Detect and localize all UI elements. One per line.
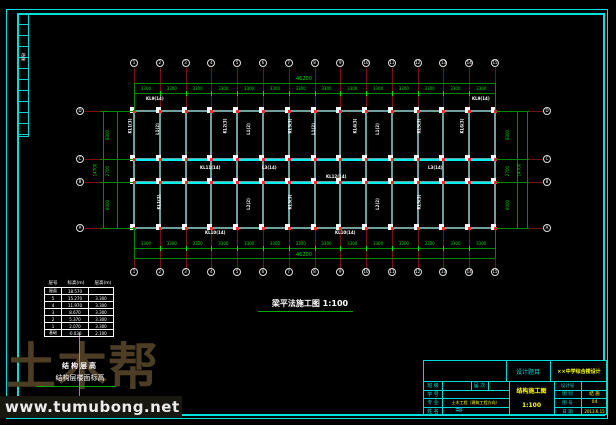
table-row: 12.0703.300 (45, 323, 114, 330)
bay-dim-text: 3300 (399, 87, 409, 91)
dim-tick (289, 246, 290, 251)
axis-bubble-left: A (76, 224, 84, 232)
grid-node (262, 110, 265, 113)
grid-node (288, 181, 291, 184)
plan-title: 梁平法施工图 1:100 (250, 298, 370, 309)
table-cell: 3.300 (89, 302, 114, 309)
table-row: 38.6703.300 (45, 309, 114, 316)
dim-tick (315, 246, 316, 251)
ext-line (100, 159, 134, 160)
axis-bubble-bottom: 9 (336, 268, 344, 276)
title-block: 设计题目 ××中学综合楼设计 班 级 届 次 学 号 专 业 土木工程（建筑工程… (423, 360, 607, 415)
overall-depth-dim-text: 14700 (517, 164, 521, 177)
table-row: 411.9703.300 (45, 302, 114, 309)
bay-dim-text: 3300 (425, 87, 435, 91)
table-cell: 8.670 (62, 309, 89, 316)
table-caption-line1: 结构层高 (40, 361, 120, 371)
bay-dim-text: 3300 (373, 87, 383, 91)
bay-dim-text: 3300 (244, 87, 254, 91)
beam-vertical (262, 111, 264, 229)
dim-tick (211, 91, 212, 96)
major-label: 专 业 (424, 398, 442, 407)
grid-node (159, 110, 162, 113)
axis-bubble-top: 4 (207, 59, 215, 67)
bay-dim-text: 3300 (321, 242, 331, 246)
dim-tick (160, 246, 161, 251)
dim-tick (418, 91, 419, 96)
overall-dim-line (103, 111, 104, 228)
grid-node (314, 158, 317, 161)
axis-bubble-top: 14 (465, 59, 473, 67)
beam-label: L3(14) (428, 166, 443, 170)
beam-label: KL10(14) (335, 231, 355, 235)
axis-bubble-top: 1 (130, 59, 138, 67)
grid-node (185, 110, 188, 113)
grid-node (288, 227, 291, 230)
span-dim-text: 6000 (106, 200, 110, 210)
grid-node (468, 158, 471, 161)
design-no-label: 设计号 (554, 381, 581, 390)
grid-node (339, 158, 342, 161)
bay-dim-text: 3300 (167, 87, 177, 91)
grid-node (185, 227, 188, 230)
grid-node (236, 227, 239, 230)
axis-bubble-top: 11 (388, 59, 396, 67)
ext-line (495, 228, 496, 258)
axis-bubble-left: C (76, 155, 84, 163)
beam-label: KL12(14) (326, 175, 346, 179)
beam-label: KL10(14) (205, 231, 225, 235)
beam-vertical (442, 111, 444, 229)
axis-bubble-bottom: 7 (285, 268, 293, 276)
table-cell: 3 (45, 309, 62, 316)
grid-node (365, 158, 368, 161)
bay-dim-text: 3300 (399, 242, 409, 246)
axis-bubble-bottom: 2 (156, 268, 164, 276)
bay-dim-text: 3300 (373, 242, 383, 246)
axis-bubble-right: C (543, 155, 551, 163)
beam-label: KL3(3) (288, 195, 292, 210)
bay-dim-text: 3300 (218, 242, 228, 246)
beam-label: L1(2) (247, 123, 251, 135)
axis-bubble-right: B (543, 178, 551, 186)
axis-bubble-bottom: 3 (182, 268, 190, 276)
bay-dim-text: 3300 (476, 242, 486, 246)
bay-dim-text: 3300 (192, 87, 202, 91)
grid-node (391, 181, 394, 184)
grid-node (468, 181, 471, 184)
beam-label: KL9(14) (146, 97, 164, 101)
grid-node (442, 227, 445, 230)
grid-node (339, 181, 342, 184)
bay-dim-text: 3300 (167, 242, 177, 246)
table-cell: 2.070 (62, 323, 89, 330)
grid-node (236, 181, 239, 184)
sheet-scale-value: 1:100 (509, 399, 554, 411)
grid-node (442, 110, 445, 113)
beam-label: KL3(3) (288, 119, 292, 134)
project-title-value: ××中学综合楼设计 (550, 361, 608, 381)
beam-label: KL6(3) (460, 119, 464, 134)
dim-tick (186, 246, 187, 251)
axis-bubble-bottom: 8 (311, 268, 319, 276)
grid-node (391, 158, 394, 161)
beam-label: L2(2) (376, 198, 380, 210)
axis-bubble-bottom: 12 (414, 268, 422, 276)
dim-tick (366, 91, 367, 96)
dim-tick (340, 246, 341, 251)
grid-node (262, 181, 265, 184)
table-row: 25.3703.300 (45, 316, 114, 323)
span-dim-line (117, 111, 118, 228)
axis-bubble-top: 9 (336, 59, 344, 67)
table-cell: -0.030 (62, 330, 89, 337)
bay-dim-text: 3300 (218, 87, 228, 91)
grid-node (210, 181, 213, 184)
project-title-label: 设计题目 (506, 361, 550, 381)
axis-bubble-bottom: 11 (388, 268, 396, 276)
bay-dim-text: 3300 (244, 242, 254, 246)
axis-bubble-bottom: 1 (130, 268, 138, 276)
bay-dim-text: 3300 (321, 87, 331, 91)
grid-node (417, 227, 420, 230)
table-row: 515.2703.300 (45, 295, 114, 302)
axis-bubble-right: A (543, 224, 551, 232)
beam-label: L1(2) (376, 123, 380, 135)
beam-vertical (236, 111, 238, 229)
watermark-url-bar: www.tumubong.net (0, 396, 182, 418)
dim-tick (469, 91, 470, 96)
axis-bubble-top: 8 (311, 59, 319, 67)
axis-bubble-top: 3 (182, 59, 190, 67)
overall-dim-text: 46200 (296, 253, 312, 258)
axis-bubble-top: 2 (156, 59, 164, 67)
beam-label: KL1(3) (128, 119, 132, 134)
grid-node (262, 227, 265, 230)
table-cell: 11.970 (62, 302, 89, 309)
dim-tick (263, 246, 264, 251)
grid-node (159, 227, 162, 230)
table-cell: 5.370 (62, 316, 89, 323)
span-dim-text: 2700 (506, 165, 510, 175)
table-cell: 2 (45, 316, 62, 323)
cad-drawing-canvas[interactable]: 结施 土木帮 www.tumubong.net 1122334455667788… (0, 0, 616, 425)
grid-node (288, 110, 291, 113)
axis-bubble-right: D (543, 107, 551, 115)
ext-line (100, 182, 134, 183)
table-cell (89, 288, 114, 295)
floor-table-header-cell: 标高(m) (62, 280, 90, 286)
beam-label: L3(14) (262, 166, 277, 170)
table-cell: 基础 (45, 330, 62, 337)
beam-vertical (494, 111, 496, 229)
beam-label: KL5(3) (417, 119, 421, 134)
dim-tick (237, 246, 238, 251)
axis-bubble-top: 10 (362, 59, 370, 67)
table-row: 基础-0.0302.100 (45, 330, 114, 337)
table-cell: 18.570 (62, 288, 89, 295)
bay-dim-text: 3300 (296, 87, 306, 91)
grid-node (468, 227, 471, 230)
dim-tick (211, 246, 212, 251)
bay-dim-text: 3300 (476, 87, 486, 91)
bay-dim-text: 3300 (270, 242, 280, 246)
beam-label: KL4(3) (353, 119, 357, 134)
dim-tick (418, 246, 419, 251)
grid-node (365, 227, 368, 230)
bay-dim-text: 3300 (141, 242, 151, 246)
ext-line (495, 182, 529, 183)
span-dim-text: 6000 (506, 200, 510, 210)
beam-label: KL1(3) (157, 195, 161, 210)
axis-bubble-bottom: 13 (439, 268, 447, 276)
axis-bubble-bottom: 6 (259, 268, 267, 276)
beam-vertical (339, 111, 341, 229)
overall-dim-line (527, 111, 528, 228)
grid-node (365, 110, 368, 113)
axis-bubble-left: D (76, 107, 84, 115)
sheet-no-value: 04 (581, 398, 608, 407)
sheet-type-label: 图 别 (554, 390, 581, 398)
table-cell: 3.300 (89, 295, 114, 302)
class-label: 班 级 (424, 381, 442, 390)
dim-tick (315, 91, 316, 96)
bay-dim-text: 3300 (141, 87, 151, 91)
beam-label: KL2(3) (223, 119, 227, 134)
sheet-title-value: 结构施工图 (509, 384, 554, 396)
axis-bubble-bottom: 5 (233, 268, 241, 276)
dim-tick (289, 91, 290, 96)
table-cell: 1 (45, 323, 62, 330)
overall-dim-line (134, 83, 495, 84)
plan-title-underline (258, 311, 353, 312)
grid-node (210, 158, 213, 161)
ext-line (495, 83, 496, 111)
ext-line (495, 228, 529, 229)
student-no-label: 学 号 (424, 390, 442, 398)
span-dim-text: 2700 (106, 165, 110, 175)
axis-bubble-top: 15 (491, 59, 499, 67)
grid-node (339, 110, 342, 113)
axis-bubble-bottom: 10 (362, 268, 370, 276)
axis-bubble-bottom: 15 (491, 268, 499, 276)
bay-dim-text: 3300 (270, 87, 280, 91)
axis-bubble-top: 6 (259, 59, 267, 67)
overall-dim-line (134, 258, 495, 259)
dim-tick (392, 91, 393, 96)
grid-node (468, 110, 471, 113)
overall-dim-text: 46200 (296, 77, 312, 82)
table-cell: 3.300 (89, 309, 114, 316)
overall-depth-dim-text: 14700 (93, 164, 97, 177)
grid-node (185, 158, 188, 161)
table-cell: 3.300 (89, 316, 114, 323)
table-cell: 4 (45, 302, 62, 309)
grid-node (417, 110, 420, 113)
beam-vertical (468, 111, 470, 229)
sheet-no-label: 图 号 (554, 398, 581, 407)
beam-label: L1(2) (312, 123, 316, 135)
axis-bubble-left: B (76, 178, 84, 186)
table-row: 屋面18.570 (45, 288, 114, 295)
beam-label: KL5(3) (417, 195, 421, 210)
grid-node (442, 181, 445, 184)
axis-bubble-bottom: 4 (207, 268, 215, 276)
grid-node (185, 181, 188, 184)
grid-node (365, 181, 368, 184)
floor-table-header: 层号标高(m)层高(m) (44, 280, 116, 286)
beam-label: L2(2) (247, 198, 251, 210)
bay-dim-text: 3300 (450, 242, 460, 246)
grid-node (391, 110, 394, 113)
axis-bubble-top: 13 (439, 59, 447, 67)
axis-bubble-top: 7 (285, 59, 293, 67)
beam-vertical (210, 111, 212, 229)
dim-tick (443, 246, 444, 251)
grid-node (442, 158, 445, 161)
bay-dim-text: 3300 (347, 242, 357, 246)
grid-node (314, 181, 317, 184)
ext-line (134, 83, 135, 111)
table-caption-line2: 结构层楼面标高 (36, 373, 124, 383)
ext-line (100, 228, 134, 229)
grid-node (159, 158, 162, 161)
grid-node (262, 158, 265, 161)
floor-elevation-table: 层号标高(m)层高(m)屋面18.570515.2703.300411.9703… (44, 280, 116, 337)
table-cell: 15.270 (62, 295, 89, 302)
table-cell: 2.100 (89, 330, 114, 337)
grid-node (288, 158, 291, 161)
bay-dim-text: 3300 (425, 242, 435, 246)
dim-tick (186, 91, 187, 96)
beam-vertical (365, 111, 367, 229)
dim-tick (340, 91, 341, 96)
date-label: 日 期 (554, 407, 581, 416)
grid-node (391, 227, 394, 230)
floor-table-header-cell: 层高(m) (90, 280, 116, 286)
date-value: 2013.6.15 (581, 407, 608, 416)
grid-node (210, 110, 213, 113)
dim-tick (237, 91, 238, 96)
grid-node (417, 158, 420, 161)
beam-label: KL11(14) (200, 166, 220, 170)
ext-line (134, 228, 135, 258)
name-label: 姓 名 (424, 407, 442, 416)
beam-label: L1(2) (156, 123, 160, 135)
table-cell: 3.300 (89, 323, 114, 330)
bay-dim-text: 3300 (192, 242, 202, 246)
beam-vertical (185, 111, 187, 229)
axis-bubble-top: 5 (233, 59, 241, 67)
session-label: 届 次 (471, 381, 488, 390)
tb-line (488, 381, 489, 390)
ext-line (100, 111, 134, 112)
table-caption-underline (36, 386, 116, 387)
span-dim-text: 6000 (506, 130, 510, 140)
dim-tick (366, 246, 367, 251)
axis-bubble-bottom: 14 (465, 268, 473, 276)
table-cell: 5 (45, 295, 62, 302)
floor-table-header-cell: 层号 (44, 280, 62, 286)
grid-node (314, 110, 317, 113)
ext-line (495, 159, 529, 160)
axis-bubble-top: 12 (414, 59, 422, 67)
ext-line (495, 111, 529, 112)
grid-node (236, 110, 239, 113)
dim-tick (469, 246, 470, 251)
span-dim-text: 6000 (106, 130, 110, 140)
signature-scribble: ≈ (444, 405, 474, 416)
grid-node (314, 227, 317, 230)
floor-table-grid: 屋面18.570515.2703.300411.9703.30038.6703.… (44, 287, 114, 337)
dim-tick (392, 246, 393, 251)
grid-node (417, 181, 420, 184)
grid-node (236, 158, 239, 161)
bay-dim-text: 3300 (347, 87, 357, 91)
dim-tick (443, 91, 444, 96)
bay-dim-text: 3300 (450, 87, 460, 91)
bay-dim-text: 3300 (296, 242, 306, 246)
sheet-type-value: 结 施 (581, 390, 608, 398)
dim-tick (263, 91, 264, 96)
beam-vertical (133, 111, 135, 229)
beam-vertical (391, 111, 393, 229)
table-cell: 屋面 (45, 288, 62, 295)
grid-node (159, 181, 162, 184)
beam-label: KL9(14) (472, 97, 490, 101)
